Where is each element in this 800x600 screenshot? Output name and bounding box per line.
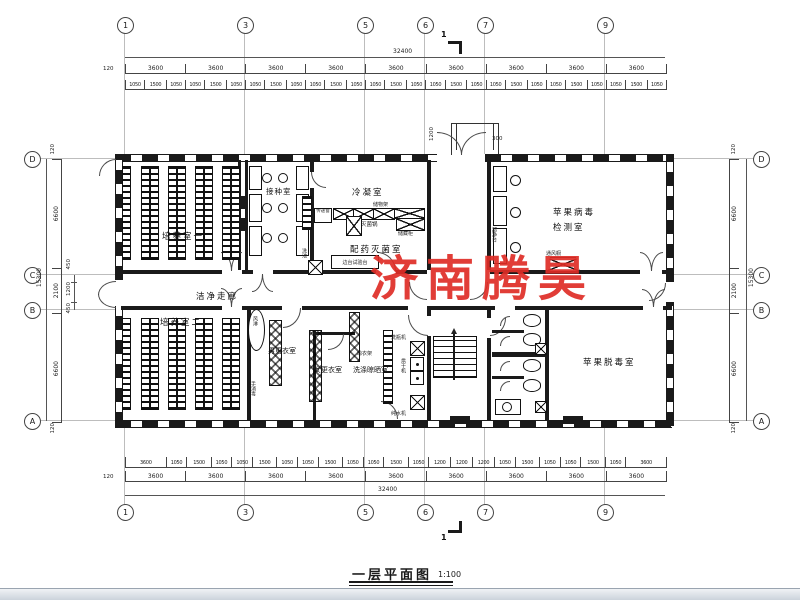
wash-basin-bowl bbox=[502, 402, 512, 412]
equip-label-storage: 储藏柜 bbox=[398, 230, 413, 237]
room-label-virus-test: 苹果病毒 bbox=[553, 206, 595, 218]
dim-line bbox=[74, 275, 75, 310]
axis-bubble: C bbox=[753, 267, 770, 284]
stair-arrow-head bbox=[451, 328, 457, 334]
stool bbox=[262, 233, 272, 243]
stool bbox=[510, 207, 521, 218]
shelving-rack bbox=[204, 318, 213, 410]
equip-label-sink: 洗池 bbox=[301, 248, 308, 258]
dim-line bbox=[746, 159, 747, 421]
dim-line bbox=[125, 57, 665, 58]
wall bbox=[310, 160, 314, 172]
door-arc bbox=[98, 294, 116, 308]
grid-line bbox=[364, 33, 365, 154]
axis-bubble: 3 bbox=[237, 17, 254, 34]
grid-line bbox=[604, 33, 605, 154]
shelving-rack bbox=[150, 166, 159, 260]
dryer-box bbox=[410, 371, 424, 385]
bench bbox=[249, 194, 262, 222]
wall bbox=[121, 270, 222, 274]
toilet bbox=[523, 314, 541, 327]
grid-line bbox=[672, 309, 753, 310]
shelving-rack bbox=[177, 318, 186, 410]
axis-bubble: 6 bbox=[417, 504, 434, 521]
stall-door-arc bbox=[500, 336, 510, 346]
dim-col-right: 660021006600 bbox=[729, 159, 739, 423]
bench bbox=[296, 166, 309, 190]
section-mark-bottom: 1 bbox=[441, 533, 447, 542]
room-label-condensing: 冷凝室 bbox=[352, 186, 384, 198]
dim-entrance-width: 1200 bbox=[429, 127, 435, 141]
axis-bubble: 1 bbox=[117, 504, 134, 521]
bottle-washer-box bbox=[410, 341, 425, 356]
grid-line bbox=[672, 274, 753, 275]
title-underline bbox=[349, 581, 453, 583]
floor-drain bbox=[535, 343, 547, 355]
axis-bubble: 6 bbox=[417, 17, 434, 34]
bench bbox=[249, 226, 262, 256]
window-edge bbox=[0, 588, 800, 600]
shelving-rack bbox=[150, 318, 159, 410]
axis-bubble: A bbox=[753, 413, 770, 430]
door-arc bbox=[311, 172, 326, 188]
equip-label-sterilizer: 灭菌锅 bbox=[361, 220, 378, 228]
equip-label-air-shower: 风淋 bbox=[252, 316, 259, 326]
floor-plan-canvas: 1 3 5 6 7 9 1 3 5 6 7 9 D C B A D C B A … bbox=[0, 0, 800, 600]
dim-edge-top: 120 bbox=[103, 66, 114, 72]
equip-label-shelf: 储物架 bbox=[373, 201, 388, 208]
door-arc bbox=[99, 159, 116, 176]
stool bbox=[278, 233, 288, 243]
dim-total-height-left: 15300 bbox=[36, 268, 43, 287]
equip-label-water-purifier: 纯水机 bbox=[391, 410, 406, 417]
axis-bubble: B bbox=[753, 302, 770, 319]
axis-bubble: 7 bbox=[477, 504, 494, 521]
shelving-rack bbox=[122, 318, 131, 410]
room-label-culture1: 培养室一 bbox=[162, 230, 204, 242]
dim-total-width-top: 32400 bbox=[393, 48, 412, 55]
door-arc bbox=[98, 281, 116, 295]
wall-shelf bbox=[302, 196, 312, 230]
equip-label-drying-rack: 晾衣架 bbox=[357, 350, 372, 357]
wall bbox=[487, 338, 491, 420]
stool bbox=[262, 173, 272, 183]
wall bbox=[115, 420, 672, 428]
stool bbox=[510, 175, 521, 186]
shelving-rack bbox=[195, 318, 204, 410]
grid-line bbox=[244, 33, 245, 154]
dim-sub-450a: 450 bbox=[66, 259, 72, 270]
door-threshold bbox=[563, 416, 583, 424]
dim-total-height-right: 15300 bbox=[748, 268, 755, 287]
stall-door-arc bbox=[500, 361, 510, 371]
dim-row-bottom-segments: 360036003600360036003600360036003600 bbox=[125, 471, 667, 482]
wall bbox=[121, 306, 222, 310]
bench bbox=[249, 166, 262, 190]
axis-bubble: A bbox=[24, 413, 41, 430]
stool bbox=[278, 203, 288, 213]
dim-row-top-segments: 360036003600360036003600360036003600 bbox=[125, 64, 667, 74]
axis-bubble: 3 bbox=[237, 504, 254, 521]
side-bench-label: 边台试验台 bbox=[342, 259, 367, 266]
grid-line bbox=[424, 33, 425, 154]
dryer-box bbox=[410, 357, 424, 371]
dim-line bbox=[46, 159, 47, 421]
room-label-women-change: 女更衣室 bbox=[314, 365, 342, 375]
dim-edge-right-top: 120 bbox=[731, 144, 737, 155]
equip-label-bottle-washer: 洗瓶机 bbox=[391, 334, 406, 341]
dim-total-width-bottom: 32400 bbox=[378, 486, 397, 493]
equip-label-clean-bench: 超净台 bbox=[491, 227, 498, 242]
shelving-rack bbox=[177, 166, 186, 260]
door-arc bbox=[651, 252, 663, 271]
stair-arrow-line bbox=[453, 334, 455, 380]
wall bbox=[245, 160, 248, 270]
dim-edge-right-bottom: 120 bbox=[731, 423, 737, 434]
shelving-rack bbox=[204, 166, 213, 260]
sterilizer-box bbox=[346, 216, 362, 236]
stall-wall bbox=[492, 330, 524, 333]
toilet bbox=[523, 359, 541, 372]
staircase bbox=[433, 336, 477, 378]
wall bbox=[427, 336, 431, 420]
shelving-rack bbox=[141, 166, 150, 260]
wall bbox=[487, 306, 491, 318]
axis-bubble: 9 bbox=[597, 17, 614, 34]
pass-window-box: 传递窗 bbox=[314, 208, 332, 223]
shelving-rack bbox=[168, 166, 177, 260]
shelving-rack bbox=[222, 318, 231, 410]
room-label-virus-test2: 检测室 bbox=[553, 221, 585, 233]
grid-line bbox=[672, 158, 753, 159]
dim-line bbox=[125, 495, 665, 496]
section-mark-bar bbox=[459, 521, 462, 533]
dim-row-bottom-subdims: 3600105015001050105015001050105015001050… bbox=[125, 457, 667, 468]
axis-bubble: 9 bbox=[597, 504, 614, 521]
watermark: 济南腾昊 bbox=[370, 252, 594, 307]
shelving-rack bbox=[168, 318, 177, 410]
section-mark-top: 1 bbox=[441, 30, 447, 39]
wall bbox=[485, 154, 672, 162]
axis-bubble: D bbox=[753, 151, 770, 168]
bench bbox=[493, 166, 507, 192]
shelving-rack bbox=[222, 166, 231, 260]
wall bbox=[273, 270, 310, 274]
wall bbox=[666, 302, 674, 426]
section-mark-bar bbox=[459, 41, 462, 54]
equip-label-dryer: 烘干机 bbox=[400, 358, 407, 373]
dim-entrance-depth: 300 bbox=[492, 136, 503, 142]
water-purifier-box bbox=[410, 395, 425, 410]
dim-edge-left-top: 120 bbox=[50, 144, 56, 155]
grid-line bbox=[672, 420, 753, 421]
equip-label-hand-sanitize: 手消毒 bbox=[250, 381, 257, 396]
door-arc bbox=[262, 274, 273, 292]
toilet bbox=[523, 379, 541, 392]
stall-door-arc bbox=[500, 381, 510, 391]
shelving-rack bbox=[141, 318, 150, 410]
door-arc bbox=[283, 308, 301, 328]
axis-bubble: 7 bbox=[477, 17, 494, 34]
title-underline bbox=[349, 585, 453, 586]
axis-bubble: 5 bbox=[357, 504, 374, 521]
stall-wall bbox=[492, 376, 524, 379]
dim-edge-bottom: 120 bbox=[103, 474, 114, 480]
wall bbox=[666, 154, 674, 282]
pass-window-label: 传递窗 bbox=[316, 209, 330, 214]
axis-bubble: 5 bbox=[357, 17, 374, 34]
door-threshold bbox=[450, 416, 470, 424]
sink-box bbox=[308, 260, 323, 275]
room-label-washing: 洗涤晾晒室 bbox=[353, 365, 388, 375]
door-arc bbox=[328, 334, 344, 350]
counter bbox=[373, 208, 395, 220]
dim-row-top-subdims: 1050150010501050150010501050150010501050… bbox=[125, 80, 667, 90]
shelving-rack bbox=[231, 166, 240, 260]
room-label-detox: 苹果脱毒室 bbox=[583, 356, 636, 368]
door-arc bbox=[408, 315, 428, 336]
axis-bubble: D bbox=[24, 151, 41, 168]
dim-sub-450b: 450 bbox=[66, 303, 72, 314]
wall bbox=[115, 154, 437, 162]
stool bbox=[262, 203, 272, 213]
axis-bubble: 1 bbox=[117, 17, 134, 34]
dim-sub-1200: 1200 bbox=[66, 282, 72, 296]
stool bbox=[278, 173, 288, 183]
shelving-rack bbox=[195, 166, 204, 260]
axis-bubble: B bbox=[24, 302, 41, 319]
room-label-men-change: 男更衣室 bbox=[268, 346, 296, 356]
dim-col-left: 660021006600 bbox=[52, 159, 62, 423]
grid-line bbox=[124, 33, 125, 154]
room-label-inoculation: 接种室 bbox=[266, 186, 292, 197]
floor-drain bbox=[535, 401, 547, 413]
bench bbox=[493, 196, 507, 226]
room-label-corridor: 洁净走廊 bbox=[196, 290, 238, 302]
shelving-rack bbox=[122, 166, 131, 260]
room-label-culture2: 培养室二 bbox=[160, 316, 202, 328]
drawing-scale: 1:100 bbox=[438, 570, 461, 579]
dim-edge-left-bottom: 120 bbox=[50, 423, 56, 434]
wall bbox=[662, 270, 672, 274]
shelving-rack bbox=[231, 318, 240, 410]
